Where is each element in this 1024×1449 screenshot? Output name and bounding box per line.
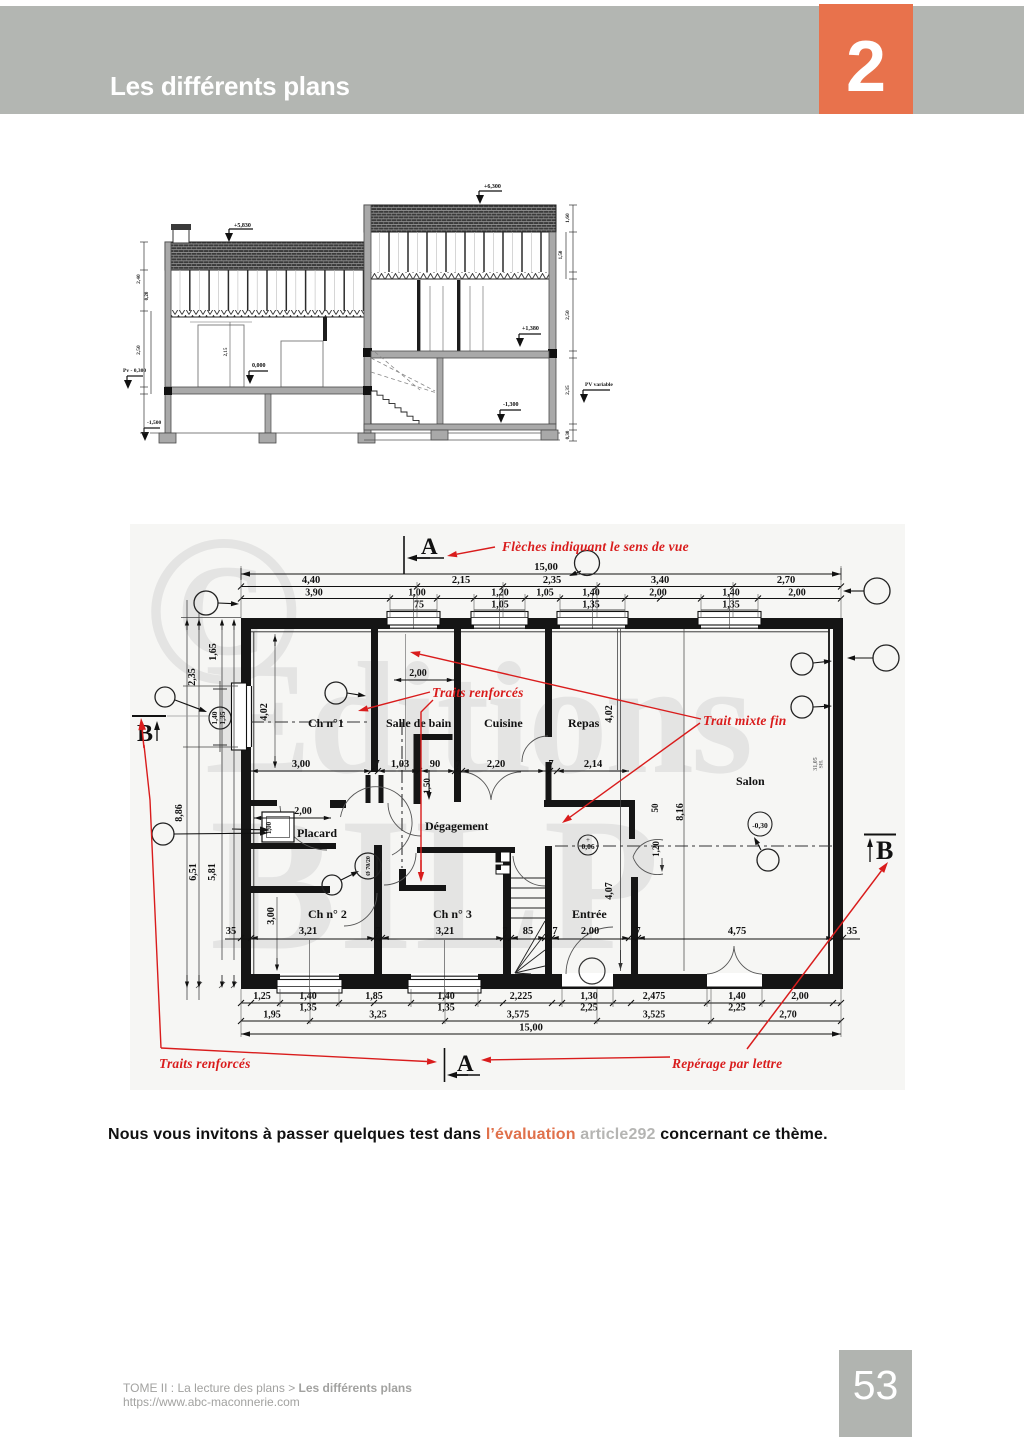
svg-text:5,81: 5,81 bbox=[207, 863, 218, 881]
svg-text:2,00: 2,00 bbox=[791, 991, 809, 1002]
svg-text:7: 7 bbox=[455, 759, 460, 770]
svg-text:6,51: 6,51 bbox=[188, 863, 199, 881]
svg-text:1,35: 1,35 bbox=[299, 1003, 317, 1014]
svg-text:3,00: 3,00 bbox=[292, 759, 310, 770]
svg-text:-0,30: -0,30 bbox=[752, 821, 768, 830]
svg-text:3,525: 3,525 bbox=[643, 1010, 666, 1021]
svg-text:+6,300: +6,300 bbox=[484, 184, 501, 190]
svg-text:2,225: 2,225 bbox=[510, 991, 533, 1002]
svg-text:4,07: 4,07 bbox=[604, 882, 615, 900]
svg-text:2,475: 2,475 bbox=[643, 991, 666, 1002]
svg-text:Dégagement: Dégagement bbox=[425, 819, 488, 833]
svg-text:3,575: 3,575 bbox=[507, 1010, 530, 1021]
svg-text:3,40: 3,40 bbox=[651, 575, 669, 586]
svg-text:1,35: 1,35 bbox=[722, 600, 740, 611]
svg-text:8,86: 8,86 bbox=[174, 804, 185, 822]
svg-text:4,75: 4,75 bbox=[728, 926, 746, 937]
svg-text:1,50: 1,50 bbox=[559, 250, 564, 259]
svg-text:Placard: Placard bbox=[297, 826, 337, 840]
svg-text:2,50: 2,50 bbox=[136, 345, 142, 355]
svg-text:1,95: 1,95 bbox=[263, 1010, 281, 1021]
svg-text:Ø 70/20: Ø 70/20 bbox=[366, 856, 372, 876]
svg-text:1,40: 1,40 bbox=[437, 991, 455, 1002]
svg-text:2,25: 2,25 bbox=[728, 1003, 746, 1014]
svg-text:3,90: 3,90 bbox=[305, 588, 323, 599]
svg-text:1,35: 1,35 bbox=[218, 711, 227, 724]
svg-text:50: 50 bbox=[650, 803, 660, 813]
svg-text:Flèches indiquant le sens de v: Flèches indiquant le sens de vue bbox=[501, 539, 689, 554]
svg-text:1,00: 1,00 bbox=[265, 821, 273, 834]
svg-text:1,35: 1,35 bbox=[437, 1003, 455, 1014]
svg-text:+5,830: +5,830 bbox=[234, 223, 251, 229]
svg-text:1,20: 1,20 bbox=[491, 588, 509, 599]
svg-text:1,05: 1,05 bbox=[536, 588, 554, 599]
svg-text:Salle de bain: Salle de bain bbox=[386, 716, 452, 730]
svg-text:-1,300: -1,300 bbox=[503, 402, 519, 408]
svg-text:2,25: 2,25 bbox=[580, 1003, 598, 1014]
svg-text:0,000: 0,000 bbox=[252, 363, 266, 369]
svg-text:1,30: 1,30 bbox=[580, 991, 598, 1002]
svg-text:Salon: Salon bbox=[736, 774, 765, 788]
svg-text:1,05: 1,05 bbox=[491, 600, 509, 611]
svg-text:2,35: 2,35 bbox=[565, 385, 571, 395]
svg-text:7: 7 bbox=[548, 759, 553, 770]
svg-text:1,60: 1,60 bbox=[565, 213, 571, 223]
svg-text:8,16: 8,16 bbox=[675, 803, 686, 821]
svg-text:Pv - 0,300: Pv - 0,300 bbox=[123, 368, 146, 374]
svg-text:Ch n° 2: Ch n° 2 bbox=[308, 907, 347, 921]
svg-text:7: 7 bbox=[552, 926, 557, 937]
svg-text:3,00: 3,00 bbox=[266, 907, 277, 925]
svg-text:PV variable: PV variable bbox=[585, 382, 613, 388]
svg-text:Ch n°1: Ch n°1 bbox=[308, 716, 344, 730]
svg-text:2,35: 2,35 bbox=[187, 668, 198, 686]
svg-text:35: 35 bbox=[847, 926, 858, 937]
svg-text:A: A bbox=[421, 534, 438, 559]
svg-text:+1,380: +1,380 bbox=[522, 326, 539, 332]
svg-text:3,25: 3,25 bbox=[369, 1010, 387, 1021]
svg-text:0,20: 0,20 bbox=[145, 291, 150, 300]
svg-text:2,70: 2,70 bbox=[779, 1010, 797, 1021]
svg-text:7: 7 bbox=[375, 926, 380, 937]
svg-text:Cuisine: Cuisine bbox=[484, 716, 523, 730]
svg-text:2,00: 2,00 bbox=[788, 588, 806, 599]
svg-text:2,00: 2,00 bbox=[294, 806, 312, 817]
svg-text:2,15: 2,15 bbox=[452, 575, 470, 586]
svg-text:2,00: 2,00 bbox=[649, 588, 667, 599]
svg-text:3,21: 3,21 bbox=[436, 926, 454, 937]
svg-text:1,25: 1,25 bbox=[253, 991, 271, 1002]
svg-text:15,00: 15,00 bbox=[534, 562, 558, 573]
svg-text:B: B bbox=[876, 836, 893, 865]
svg-text:Repérage par lettre: Repérage par lettre bbox=[671, 1056, 782, 1071]
svg-text:1,40: 1,40 bbox=[299, 991, 317, 1002]
svg-text:15,00: 15,00 bbox=[519, 1023, 543, 1034]
svg-text:1,03: 1,03 bbox=[391, 759, 409, 770]
svg-text:Repas: Repas bbox=[568, 716, 600, 730]
svg-text:1,40: 1,40 bbox=[722, 588, 740, 599]
svg-text:2,00: 2,00 bbox=[409, 668, 427, 679]
svg-text:2,15: 2,15 bbox=[224, 347, 229, 356]
svg-text:1,20: 1,20 bbox=[651, 841, 661, 857]
svg-text:+: + bbox=[586, 836, 590, 844]
svg-text:1,65: 1,65 bbox=[208, 643, 219, 661]
svg-text:Entrée: Entrée bbox=[572, 907, 607, 921]
svg-text:1,85: 1,85 bbox=[365, 991, 383, 1002]
svg-text:4,02: 4,02 bbox=[604, 705, 615, 723]
svg-text:4,40: 4,40 bbox=[302, 575, 320, 586]
svg-text:1,40: 1,40 bbox=[728, 991, 746, 1002]
svg-text:75: 75 bbox=[414, 600, 424, 611]
svg-text:A: A bbox=[457, 1051, 474, 1076]
svg-text:4,02: 4,02 bbox=[259, 703, 270, 721]
svg-text:Traits renforcés: Traits renforcés bbox=[159, 1056, 251, 1071]
svg-text:90: 90 bbox=[430, 759, 441, 770]
svg-text:Trait mixte fin: Trait mixte fin bbox=[703, 713, 787, 728]
svg-text:2,14: 2,14 bbox=[584, 759, 603, 770]
svg-text:2,40: 2,40 bbox=[136, 274, 142, 284]
svg-text:35: 35 bbox=[226, 926, 237, 937]
svg-text:0,30: 0,30 bbox=[566, 430, 571, 439]
svg-text:B: B bbox=[137, 721, 153, 747]
svg-text:Traits renforcés: Traits renforcés bbox=[432, 685, 524, 700]
svg-text:2,00: 2,00 bbox=[581, 926, 599, 937]
svg-text:SH.: SH. bbox=[819, 759, 825, 768]
svg-text:7: 7 bbox=[374, 759, 379, 770]
svg-text:3,21: 3,21 bbox=[299, 926, 317, 937]
svg-text:7: 7 bbox=[635, 926, 640, 937]
svg-text:-1,500: -1,500 bbox=[147, 420, 161, 426]
svg-text:2,70: 2,70 bbox=[777, 575, 795, 586]
svg-text:7: 7 bbox=[502, 926, 507, 937]
svg-text:2,20: 2,20 bbox=[487, 759, 505, 770]
svg-text:2,35: 2,35 bbox=[543, 575, 561, 586]
svg-text:85: 85 bbox=[523, 926, 534, 937]
svg-text:Ch n° 3: Ch n° 3 bbox=[433, 907, 472, 921]
svg-text:2,50: 2,50 bbox=[565, 310, 571, 320]
svg-text:1,50: 1,50 bbox=[422, 778, 432, 794]
